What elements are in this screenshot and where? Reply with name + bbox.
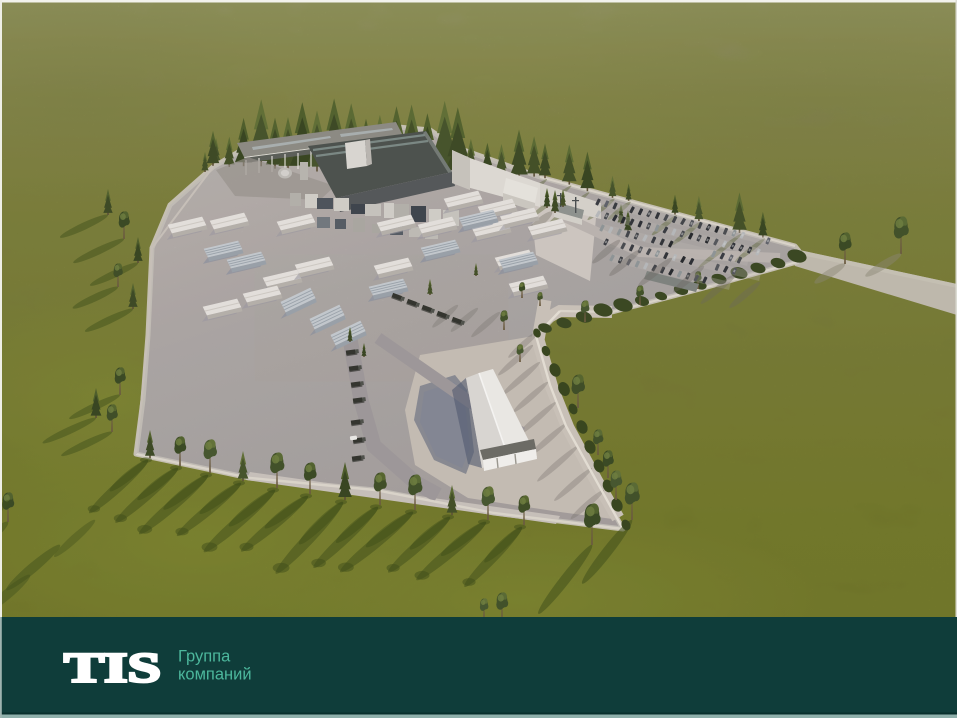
svg-text:Группа: Группа [178, 648, 231, 666]
svg-text:TIS: TIS [64, 646, 161, 692]
svg-text:компаний: компаний [178, 666, 252, 684]
